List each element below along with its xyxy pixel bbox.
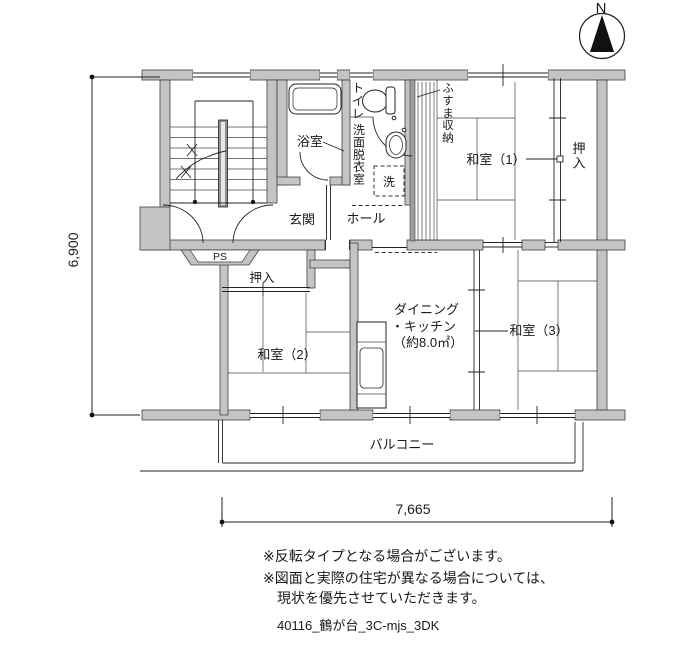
label-washer: 洗 (383, 175, 395, 189)
notes-block: ※反転タイプとなる場合がございます。 ※図面と実際の住宅が異なる場合については、… (263, 548, 554, 633)
stairs (163, 101, 273, 243)
window-dining-kitchen (373, 406, 450, 424)
note-line-1: ※反転タイプとなる場合がございます。 (263, 548, 511, 564)
fusuma-storage-strip (410, 80, 437, 241)
stair-break-mark (187, 144, 197, 156)
label-dk-line1: ダイニング (394, 302, 459, 317)
label-pipe-shaft: PS (213, 251, 227, 263)
door-arc-entrance (233, 205, 273, 243)
hall-niche-doorway (326, 240, 350, 250)
window-japanese-room-2 (250, 406, 320, 424)
sliding-door-room1-room3 (483, 237, 522, 253)
window-bath (320, 70, 337, 80)
opening-closet-upper (545, 243, 558, 248)
label-bathroom: 浴室 (297, 134, 323, 149)
label-washroom: 洗面脱衣室 (353, 123, 365, 187)
label-fusuma-storage: ふすま収納 (442, 82, 454, 145)
dimension-width-value: 7,665 (395, 501, 430, 517)
toilet-fixture (363, 87, 396, 120)
label-toilet: トイレ (352, 81, 364, 121)
floor-plan-page: 6,900 7,665 N 浴室 トイレ 洗面脱衣室 ふすま収納 和室（1） 押… (0, 0, 700, 650)
dimension-horizontal: 7,665 (220, 497, 615, 527)
dimension-height-value: 6,900 (65, 232, 81, 267)
kitchen-counter (357, 322, 386, 408)
label-dk-line2: ・キッチン (391, 319, 456, 334)
window-toilet (350, 70, 373, 80)
note-line-3: 現状を優先させていただきます。 (277, 590, 486, 606)
plan-id-label: 40116_鶴が台_3C-mjs_3DK (277, 618, 440, 633)
label-balcony: バルコニー (370, 437, 435, 452)
north-needle (590, 15, 614, 52)
bathtub (289, 84, 341, 114)
label-closet-lower: 押入 (249, 271, 275, 285)
bath-door-arc (300, 152, 328, 180)
window-japanese-room-1 (468, 64, 548, 86)
label-hall: ホール (346, 211, 385, 226)
label-closet-upper: 押入 (572, 141, 585, 171)
label-dk-line3: （約8.0㎡） (393, 335, 463, 350)
window-stairwell (193, 70, 250, 80)
label-entrance: 玄関 (289, 212, 315, 227)
label-japanese-room-1: 和室（1） (466, 152, 525, 167)
label-japanese-room-3: 和室（3） (509, 323, 568, 338)
north-compass: N (580, 0, 625, 59)
note-line-2: ※図面と実際の住宅が異なる場合については、 (263, 570, 554, 586)
window-japanese-room-3 (500, 406, 575, 424)
wash-basin (386, 128, 406, 158)
label-japanese-room-2: 和室（2） (257, 347, 316, 362)
balcony-outline (140, 420, 583, 471)
floor-plan-drawing: 6,900 7,665 N 浴室 トイレ 洗面脱衣室 ふすま収納 和室（1） 押… (0, 0, 700, 650)
